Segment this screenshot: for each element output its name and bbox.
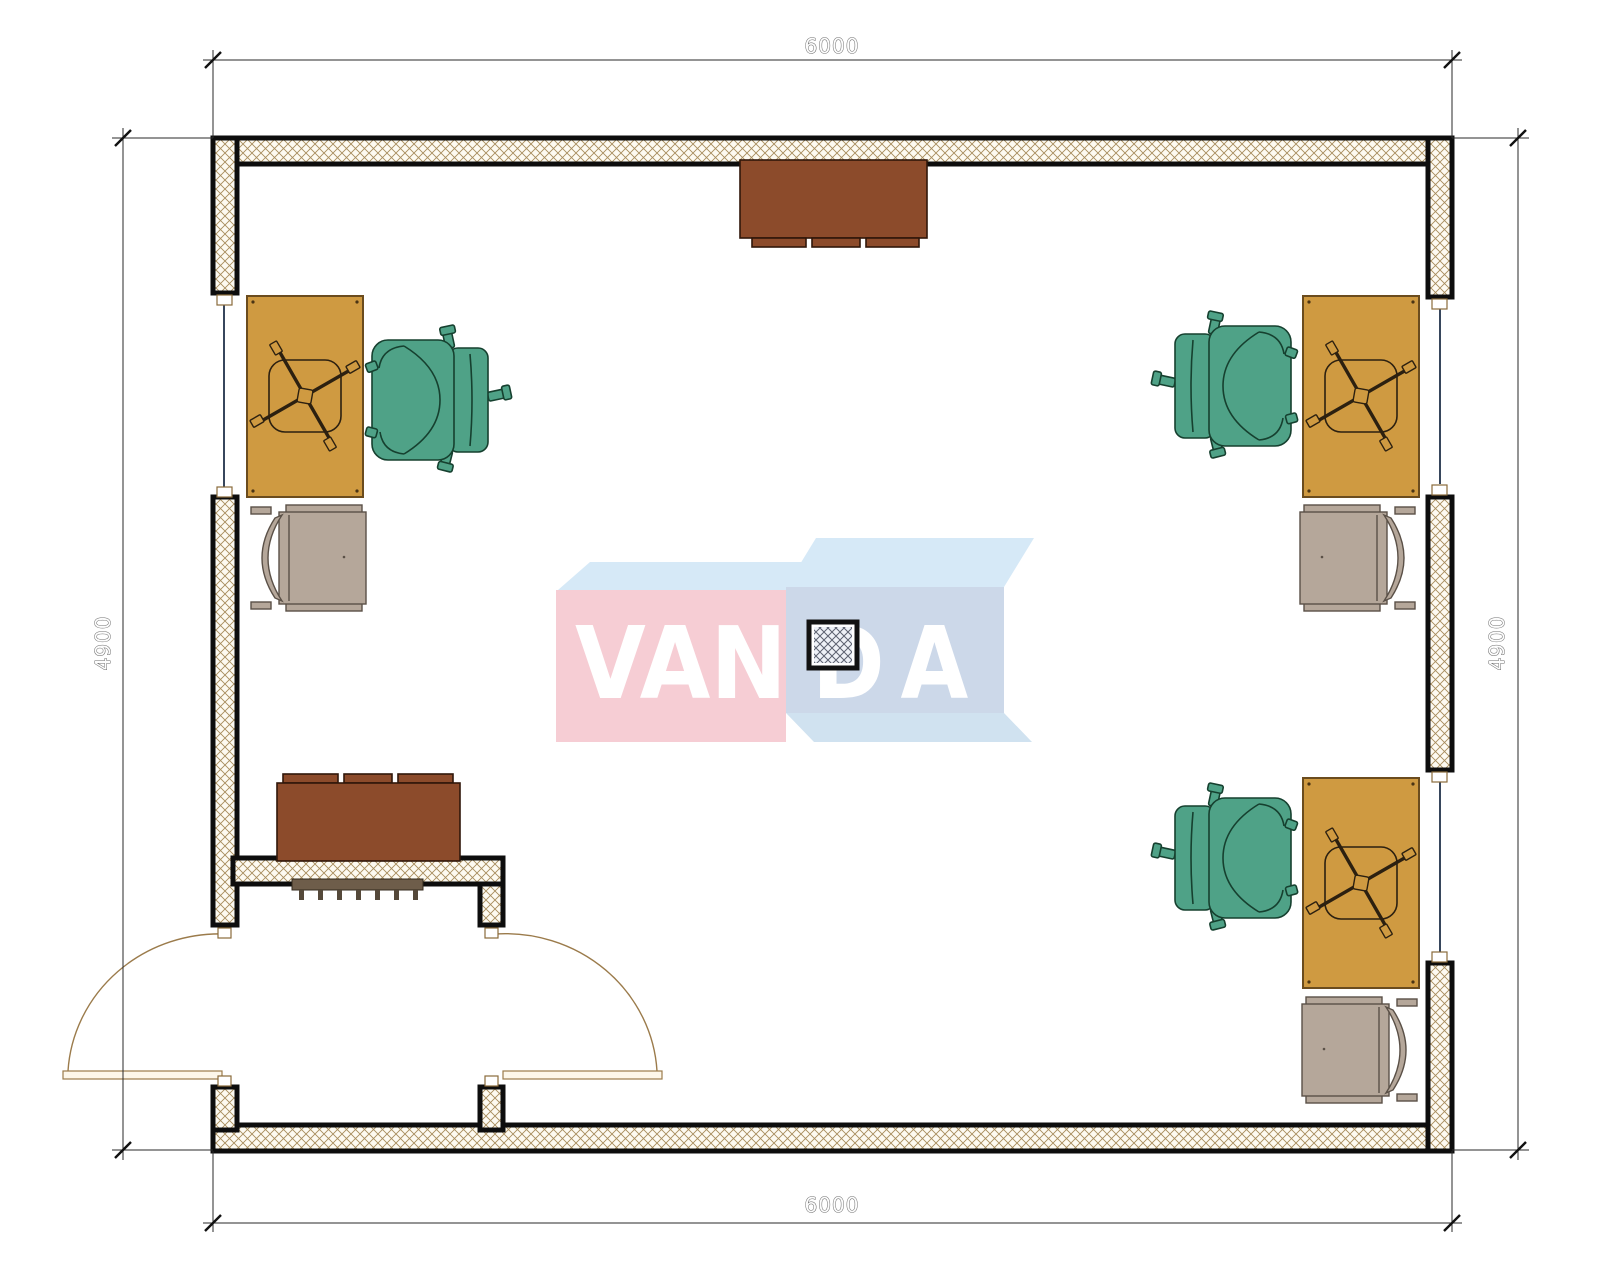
door-hinge-left-top [218, 928, 231, 938]
desk-top-right [1303, 296, 1419, 497]
wall-right-upper [1428, 138, 1452, 297]
door-hinge-left-bottom [218, 1076, 231, 1086]
task-chair-bottom-right [1151, 783, 1298, 931]
wall-right-middle [1428, 497, 1452, 770]
radiator-body [292, 879, 423, 890]
cabinet-bottom-left [277, 774, 460, 861]
window-right-lower-sill-top [1432, 772, 1447, 782]
visitor-chair-bottom-right [1302, 997, 1417, 1103]
visitor-chair-top-left [251, 505, 366, 611]
desk-bottom-right [1303, 778, 1419, 988]
door-swing-arc-left [68, 934, 226, 1071]
wall-door-jamb-left [213, 1087, 237, 1130]
dimension-label-bottom: 6000 [805, 1193, 860, 1217]
door-leaf-right [503, 1071, 662, 1079]
watermark-pink-box-top-face [558, 562, 818, 590]
wall-bottom [213, 1125, 1452, 1151]
window-left-sill-top [217, 295, 232, 305]
dimension-label-right: 4900 [1485, 616, 1509, 671]
radiator [292, 879, 423, 900]
window-right-upper-sill-top [1432, 299, 1447, 309]
radiator-fins [299, 890, 418, 900]
vanda-watermark: VAN DA [556, 538, 1034, 742]
wall-door-jamb-right [480, 1087, 503, 1130]
window-right-lower-sill-bottom [1432, 952, 1447, 962]
window-left-sill-bottom [217, 487, 232, 497]
visitor-chair-top-right [1300, 505, 1415, 611]
dimension-bottom-lines [203, 1151, 1462, 1232]
task-chair-top-left [365, 325, 512, 473]
door-swing-arc-right [495, 934, 657, 1071]
door-hinge-right-bottom [485, 1076, 498, 1086]
wall-left-upper [213, 138, 237, 293]
watermark-blue-box-top-face [786, 538, 1034, 587]
floor-plan-drawing: VAN DA [0, 0, 1600, 1280]
floor-plan-canvas: VAN DA [0, 0, 1600, 1280]
wall-vestibule-right-return [480, 884, 503, 925]
door-hinge-right-top [485, 928, 498, 938]
task-chair-top-right [1151, 311, 1298, 459]
entrance-double-door [63, 928, 662, 1086]
column-hatch [814, 627, 852, 663]
wall-right-lower [1428, 963, 1452, 1151]
structural-column [809, 622, 857, 668]
door-leaf-left [63, 1071, 222, 1079]
dimension-left-lines [112, 128, 213, 1160]
cabinet-top-center [740, 160, 927, 247]
dimension-label-left: 4900 [91, 616, 115, 671]
dimension-top-lines [203, 50, 1462, 138]
dimension-label-top: 6000 [805, 34, 860, 58]
window-right-upper-sill-bottom [1432, 485, 1447, 495]
desk-top-left [247, 296, 363, 497]
watermark-text-van: VAN [575, 605, 787, 722]
